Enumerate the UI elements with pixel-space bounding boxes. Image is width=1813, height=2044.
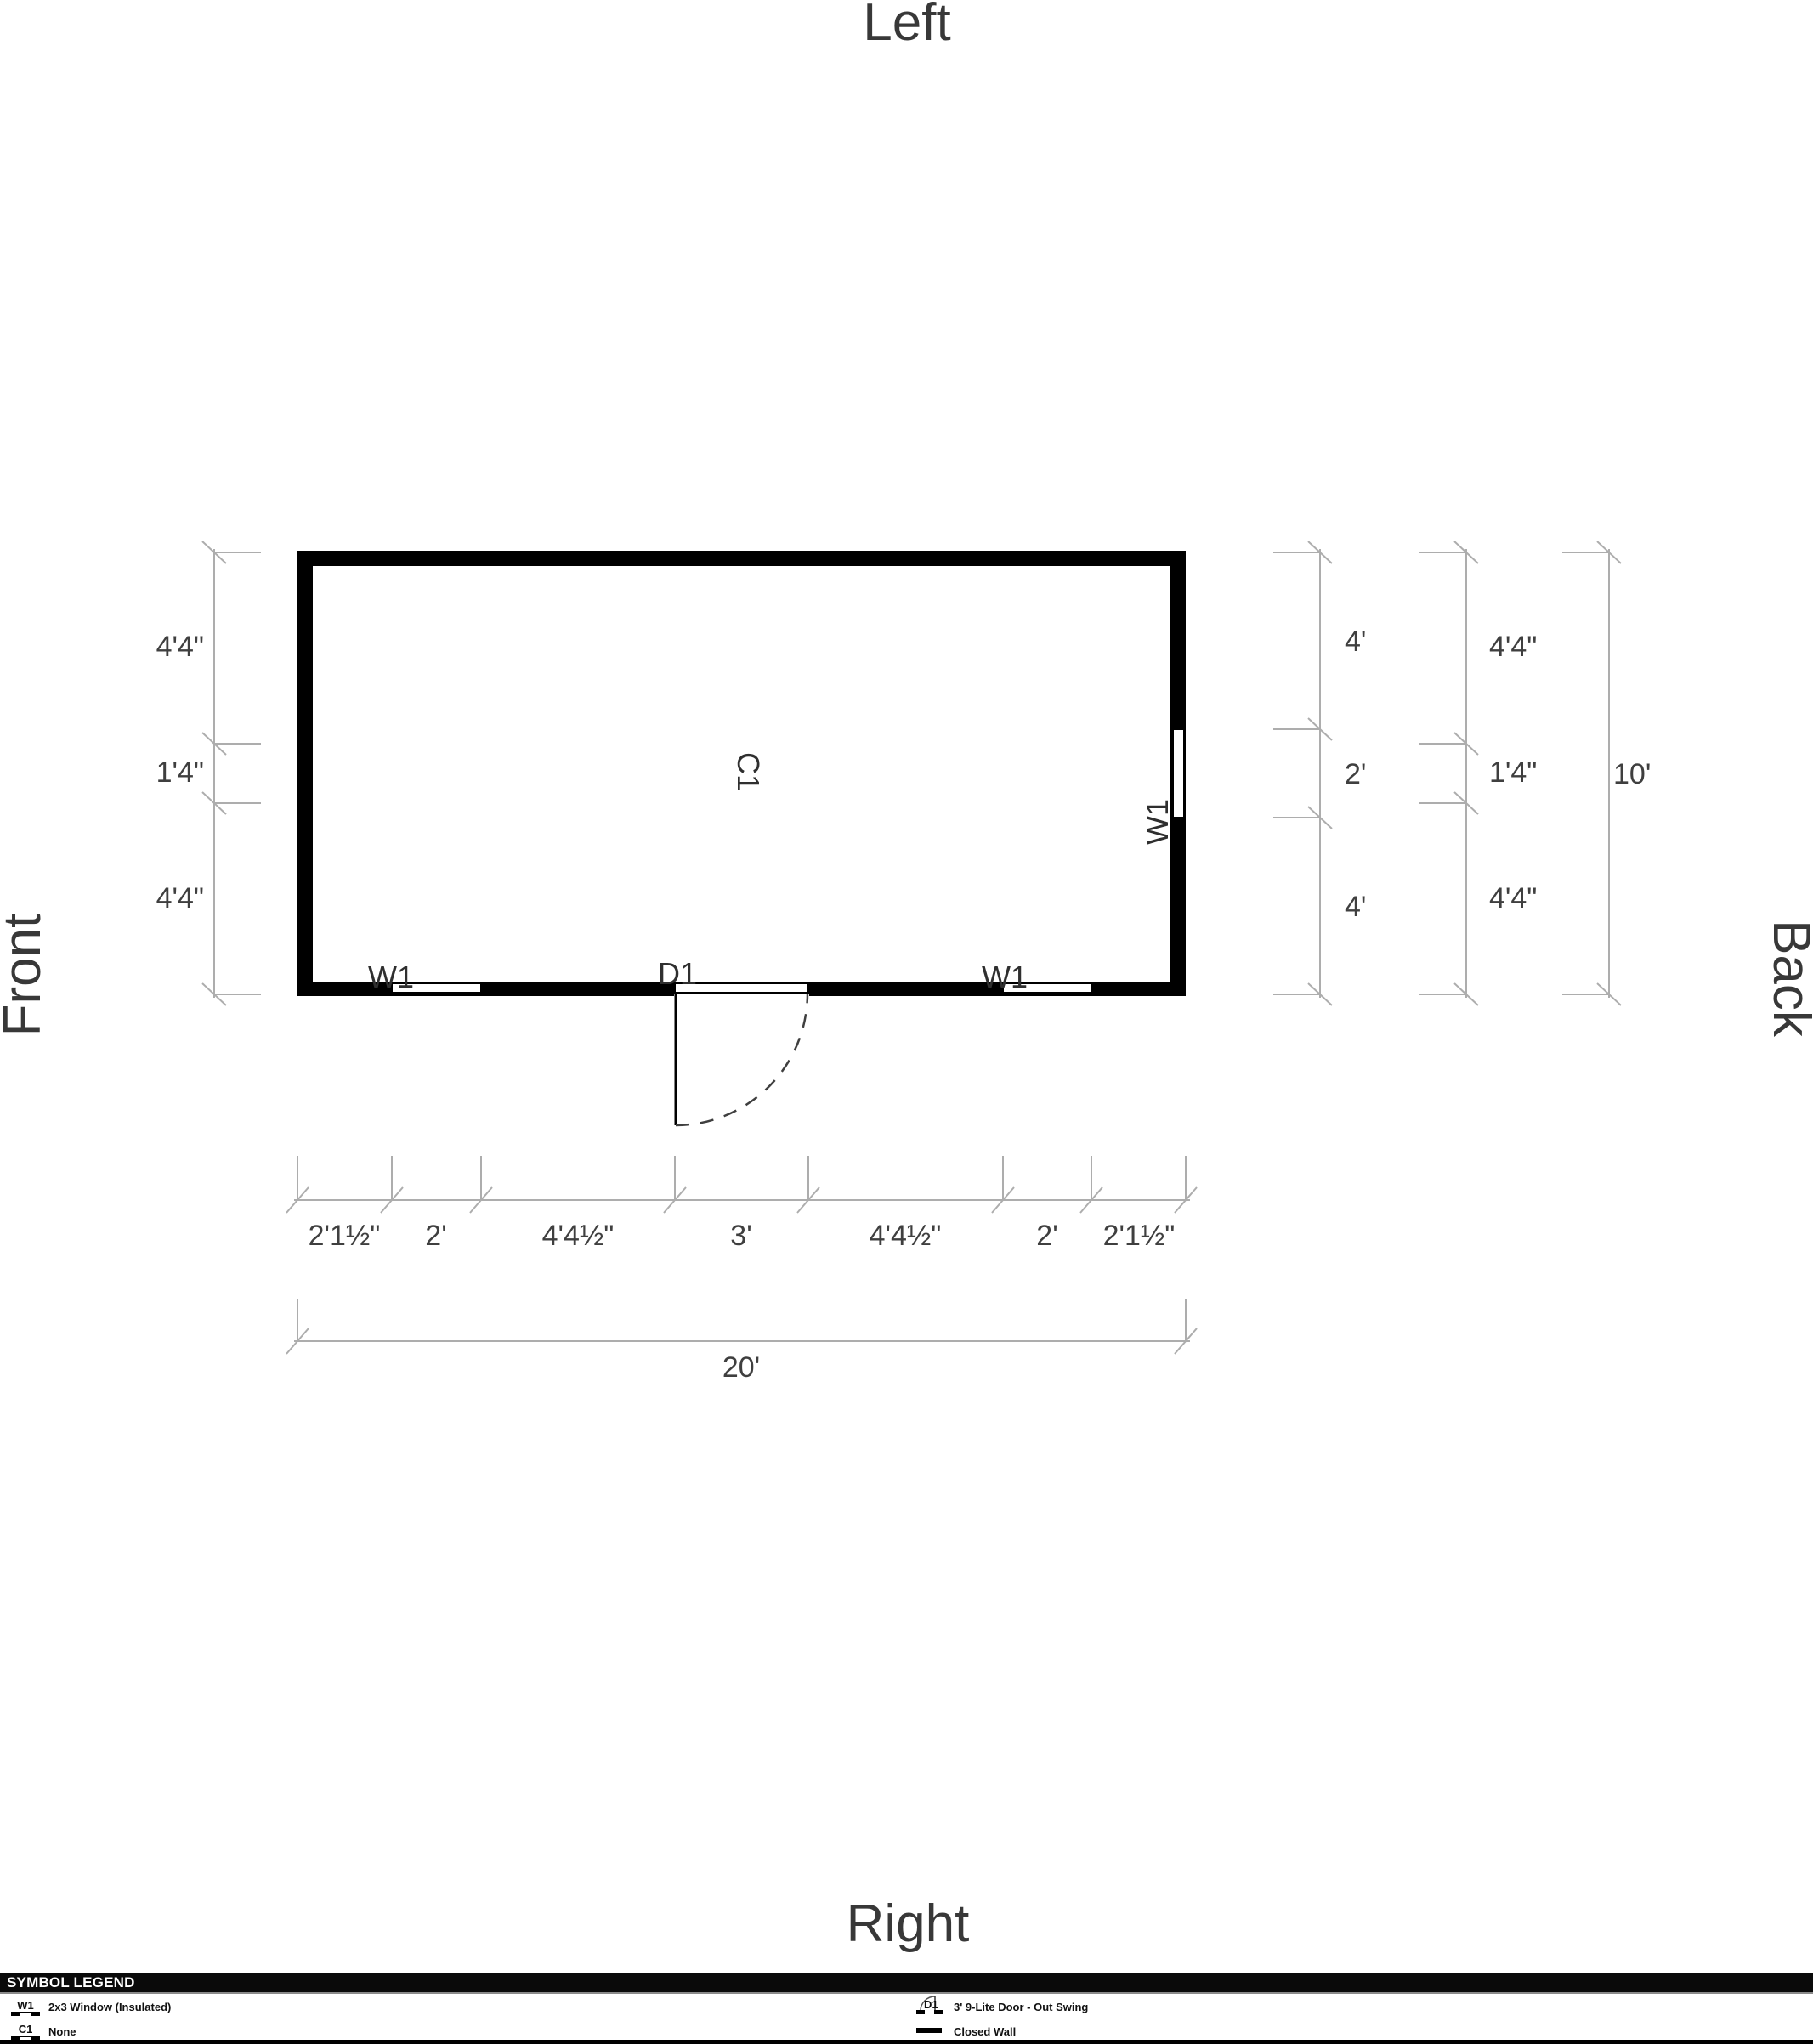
dim-label-bottom-seg-2: 2' xyxy=(425,1220,446,1252)
window-label-front-left: W1 xyxy=(368,960,414,994)
dim-line-bottom-segments xyxy=(286,1156,1197,1213)
dim-label-left-mid: 1'4" xyxy=(156,756,204,789)
dim-line-right-middle xyxy=(1419,541,1478,1005)
dim-label-right-middle-top: 4'4" xyxy=(1489,631,1537,663)
legend-door-symbol-label: D1 xyxy=(924,1998,938,2011)
dim-label-right-total: 10' xyxy=(1613,758,1651,790)
side-label-left: Left xyxy=(863,0,950,52)
floor-plan-drawing: 4'4" 1'4" 4'4" 4' 2' 4' 4'4" 1'4" 4'4" 1… xyxy=(0,0,1813,2044)
dim-line-left xyxy=(202,541,261,1005)
window-label-front-right: W1 xyxy=(982,960,1028,994)
legend-window-description: 2x3 Window (Insulated) xyxy=(48,2001,171,2013)
room-label: C1 xyxy=(731,752,766,791)
dim-label-right-middle-mid: 1'4" xyxy=(1489,756,1537,789)
dim-line-bottom-total xyxy=(286,1299,1197,1354)
dim-label-bottom-seg-4: 3' xyxy=(730,1220,751,1252)
dim-label-bottom-seg-7: 2'1½" xyxy=(1103,1220,1176,1252)
legend-divider xyxy=(0,1992,1813,1994)
window-symbol-cap-left xyxy=(11,2012,20,2016)
legend-door-description: 3' 9-Lite Door - Out Swing xyxy=(954,2001,1088,2013)
dim-label-bottom-seg-1: 2'1½" xyxy=(309,1220,381,1252)
dim-label-right-inner-bottom: 4' xyxy=(1345,891,1366,923)
legend-window-symbol-label: W1 xyxy=(11,1999,40,2012)
floor-plan-page: 4'4" 1'4" 4'4" 4' 2' 4' 4'4" 1'4" 4'4" 1… xyxy=(0,0,1813,2044)
legend-closed-wall-description: Closed Wall xyxy=(954,2025,1016,2038)
dim-label-left-top: 4'4" xyxy=(156,631,204,663)
side-label-back: Back xyxy=(1762,920,1813,1038)
dim-line-right-total xyxy=(1562,541,1621,1005)
side-label-right: Right xyxy=(847,1894,970,1953)
dim-label-right-middle-bottom: 4'4" xyxy=(1489,882,1537,914)
page-bottom-border xyxy=(0,2040,1813,2044)
dim-label-right-inner-mid: 2' xyxy=(1345,758,1366,790)
window-label-back-wall: W1 xyxy=(1140,799,1175,845)
door-swing-arc xyxy=(676,994,807,1125)
legend-wall-config-description: None xyxy=(48,2025,76,2038)
dim-label-bottom-seg-3: 4'4½" xyxy=(542,1220,615,1252)
dim-line-right-inner xyxy=(1273,541,1332,1005)
door xyxy=(674,979,809,1125)
dim-label-bottom-seg-5: 4'4½" xyxy=(870,1220,942,1252)
window-symbol-cap-right xyxy=(31,2012,40,2016)
dim-label-left-bottom: 4'4" xyxy=(156,882,204,914)
side-label-front: Front xyxy=(0,914,52,1037)
dim-label-bottom-seg-6: 2' xyxy=(1036,1220,1057,1252)
door-label: D1 xyxy=(658,956,697,991)
legend-title: SYMBOL LEGEND xyxy=(0,1973,1813,1992)
dim-label-right-inner-top: 4' xyxy=(1345,626,1366,658)
dim-label-bottom-total: 20' xyxy=(722,1351,760,1384)
legend-wall-config-symbol-label: C1 xyxy=(11,2023,40,2036)
closed-wall-symbol-icon xyxy=(916,2028,942,2033)
